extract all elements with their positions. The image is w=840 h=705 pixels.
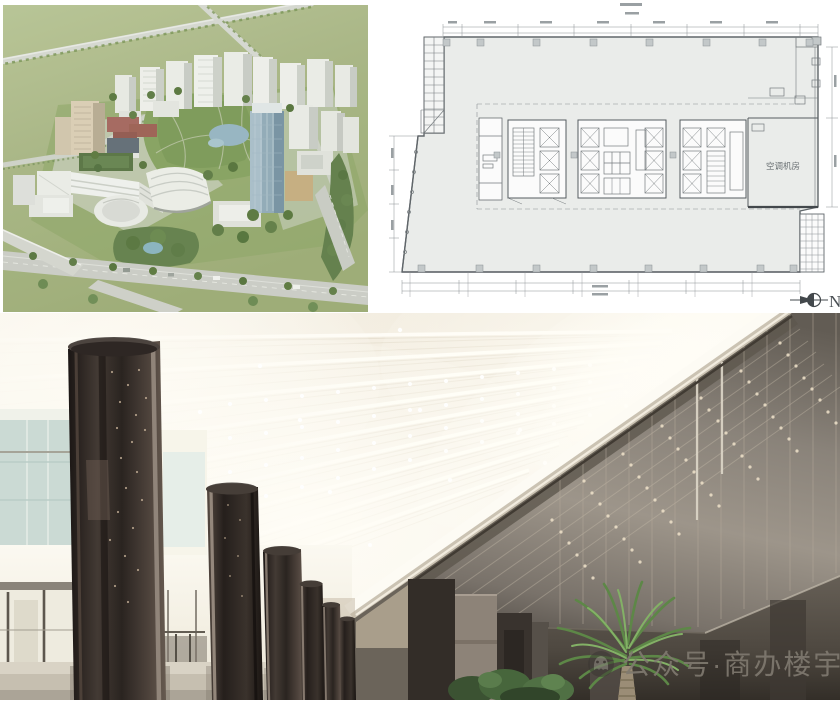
svg-text:N: N (829, 292, 840, 311)
svg-text:公众号·商办楼宇: 公众号·商办楼宇 (622, 649, 840, 680)
svg-text:空调机房: 空调机房 (766, 161, 800, 171)
